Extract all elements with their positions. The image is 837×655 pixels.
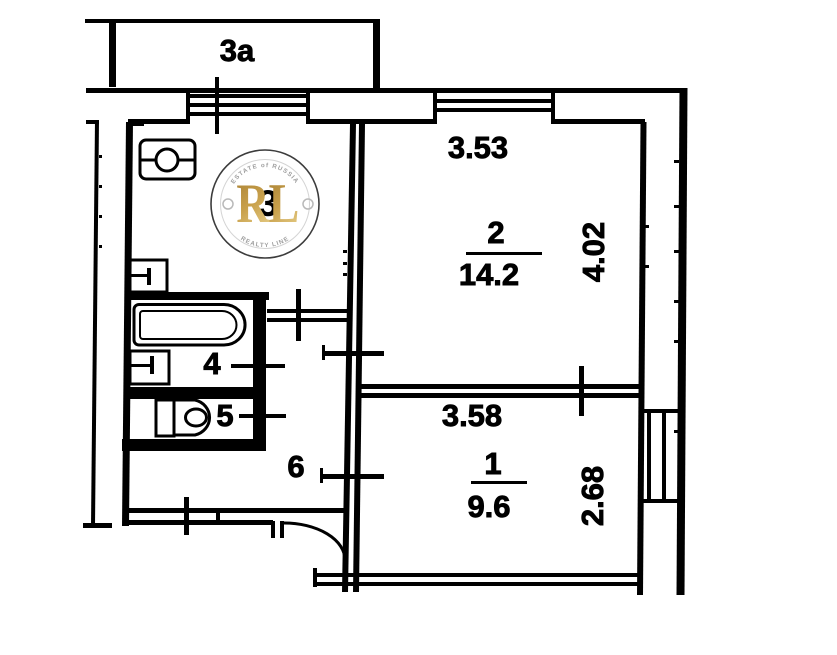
svg-text:5: 5 [216, 398, 233, 433]
svg-text:3.53: 3.53 [448, 130, 508, 165]
svg-text:L: L [269, 173, 300, 235]
svg-text:2.68: 2.68 [575, 466, 610, 526]
svg-text:3a: 3a [220, 33, 255, 68]
svg-text:1: 1 [484, 446, 501, 481]
svg-text:2: 2 [487, 215, 504, 250]
svg-text:9.6: 9.6 [467, 489, 510, 524]
svg-text:4.02: 4.02 [576, 222, 611, 282]
svg-text:4: 4 [203, 346, 221, 381]
svg-text:14.2: 14.2 [459, 257, 519, 292]
svg-text:R: R [236, 173, 270, 235]
svg-text:3.58: 3.58 [442, 398, 502, 433]
svg-text:6: 6 [287, 449, 304, 484]
